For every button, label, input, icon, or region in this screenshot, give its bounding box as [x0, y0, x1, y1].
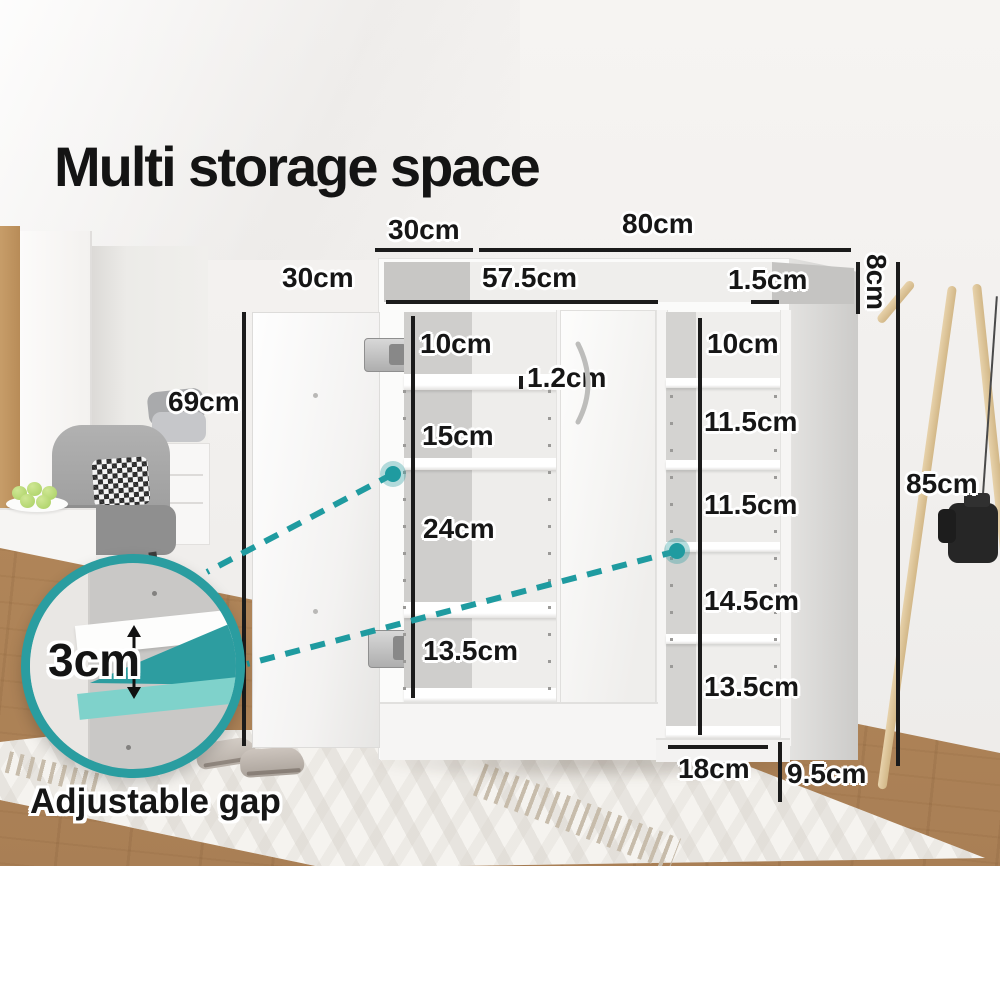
cabinet-side-panel [790, 258, 858, 760]
shelf [666, 542, 782, 552]
dim-label-right-gap-1: 10cm [707, 328, 779, 360]
shelf-pin-holes [403, 390, 406, 690]
page-title: Multi storage space [54, 134, 539, 199]
shelf-pin-holes [548, 390, 551, 690]
dim-label-mid-gap-3: 24cm [423, 513, 495, 545]
dim-label-top-depth: 30cm [388, 214, 460, 246]
bottom-white-band [0, 866, 1000, 1000]
cabinet-bottom-panel [666, 726, 782, 738]
dim-label-edge-thickness: 1.5cm [728, 264, 807, 296]
dim-label-base-height: 9.5cm [787, 758, 866, 790]
dim-label-mid-gap-1: 10cm [420, 328, 492, 360]
dim-label-door-width: 30cm [282, 262, 354, 294]
dim-label-total-width: 80cm [622, 208, 694, 240]
shelf [666, 460, 782, 470]
dim-line-right-column [698, 318, 702, 735]
shelf [666, 634, 782, 644]
dim-label-base-depth: 18cm [678, 753, 750, 785]
dim-label-top-height: 8cm [860, 254, 892, 310]
dim-label-right-gap-3: 11.5cm [704, 489, 797, 521]
dim-line-total-height [896, 262, 900, 766]
adjustable-gap-caption: Adjustable gap [30, 782, 281, 822]
dim-label-right-gap-2: 11.5cm [704, 406, 797, 438]
shelf-pin-hole [152, 591, 157, 596]
open-left-door [252, 312, 380, 748]
hanging-camera [948, 503, 998, 563]
dim-label-right-gap-5: 13.5cm [704, 671, 799, 703]
dim-tick-shelf-thickness [519, 376, 523, 389]
gap-value-label: 3cm [48, 633, 140, 687]
dim-label-shelf-thickness: 1.2cm [527, 362, 606, 394]
dim-label-door-height: 69cm [168, 386, 240, 418]
apple [20, 494, 35, 508]
shelf [404, 602, 558, 618]
dim-line-top-depth [375, 248, 473, 252]
magnifier-circle: 3cm [21, 554, 245, 778]
dim-label-mid-gap-2: 15cm [422, 420, 494, 452]
dim-line-middle-column [411, 316, 415, 698]
shelf-pin-holes [670, 395, 673, 685]
product-dimension-diagram: Multi storage space 30cm 80cm 57.5cm [0, 0, 1000, 1000]
door-pin-hole [313, 393, 318, 398]
cabinet-top-surface [384, 262, 470, 302]
dim-line-base-depth [668, 745, 768, 749]
shelf-pin-holes [774, 395, 777, 685]
checkered-pillow [91, 456, 150, 508]
dim-label-right-gap-4: 14.5cm [704, 585, 799, 617]
shoe [239, 746, 305, 778]
dim-label-mid-gap-4: 13.5cm [423, 635, 518, 667]
dim-line-total-width [479, 248, 851, 252]
dim-label-inner-width: 57.5cm [482, 262, 577, 294]
cabinet-plinth [380, 702, 658, 760]
dim-line-edge-thickness [751, 300, 779, 304]
dim-line-inner-width [386, 300, 658, 304]
shelf [666, 378, 782, 388]
cabinet-bottom-panel [404, 688, 558, 702]
shelf [404, 458, 558, 470]
apple [36, 495, 51, 509]
door-pin-hole [313, 609, 318, 614]
shelf-pin-hole [126, 745, 131, 750]
dim-label-total-height: 85cm [906, 468, 978, 500]
dim-line-base-height [778, 742, 782, 802]
